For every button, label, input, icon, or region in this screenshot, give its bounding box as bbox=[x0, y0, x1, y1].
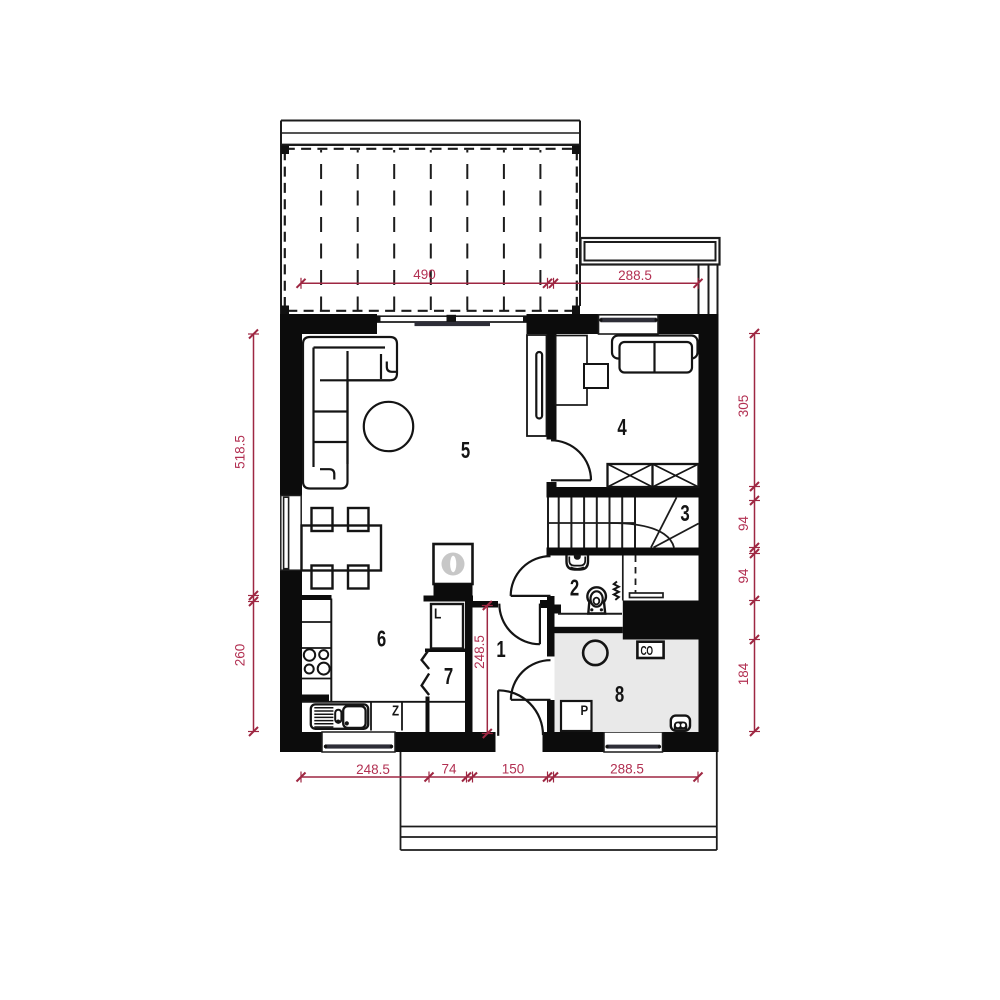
svg-text:P: P bbox=[581, 703, 589, 718]
svg-text:4: 4 bbox=[617, 416, 627, 441]
svg-text:518.5: 518.5 bbox=[233, 435, 248, 469]
svg-text:2: 2 bbox=[570, 576, 579, 601]
svg-text:288.5: 288.5 bbox=[618, 268, 652, 283]
svg-text:94: 94 bbox=[736, 568, 751, 584]
svg-text:8: 8 bbox=[615, 683, 624, 708]
svg-text:CO: CO bbox=[641, 644, 654, 658]
svg-text:5: 5 bbox=[461, 439, 470, 464]
svg-text:1: 1 bbox=[496, 638, 505, 663]
svg-text:248.5: 248.5 bbox=[472, 635, 487, 669]
svg-text:260: 260 bbox=[233, 644, 248, 667]
svg-text:74: 74 bbox=[441, 762, 457, 777]
svg-text:248.5: 248.5 bbox=[356, 762, 390, 777]
svg-text:150: 150 bbox=[502, 762, 525, 777]
svg-text:94: 94 bbox=[736, 516, 751, 532]
svg-text:Z: Z bbox=[392, 702, 399, 719]
svg-text:305: 305 bbox=[736, 395, 751, 418]
svg-text:7: 7 bbox=[444, 665, 453, 690]
svg-text:6: 6 bbox=[377, 627, 386, 652]
svg-text:288.5: 288.5 bbox=[610, 762, 644, 777]
svg-text:490: 490 bbox=[413, 267, 436, 282]
svg-text:3: 3 bbox=[680, 502, 689, 527]
svg-text:184: 184 bbox=[736, 662, 751, 685]
svg-text:L: L bbox=[434, 605, 441, 622]
